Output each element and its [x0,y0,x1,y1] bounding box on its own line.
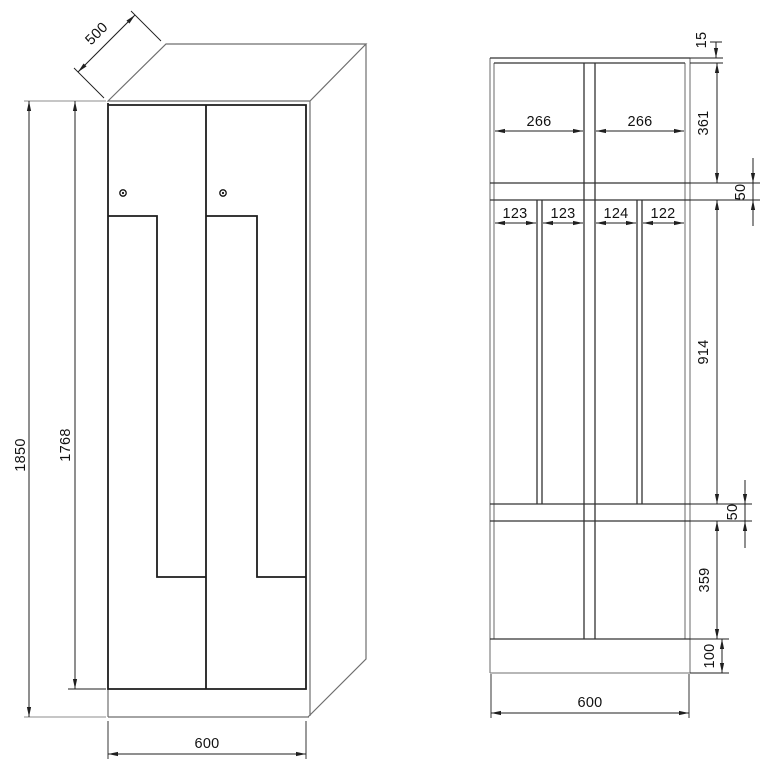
dim-top-compartment-left: 266 [495,114,583,131]
dim-depth-label: 500 [82,19,111,48]
dim-column-3: 124 [596,206,636,223]
dim-column-1-label: 123 [502,206,527,222]
lock-left-pin [122,192,124,194]
dim-shelf-gap-bottom-label: 50 [725,504,741,521]
dim-top-compartment-right-label: 266 [627,114,652,130]
dim-door-height: 1768 [58,101,106,689]
dim-width-front-label: 600 [194,736,219,752]
dim-shelf-gap-bottom: 50 [725,480,745,548]
cabinet-body-outline [108,44,366,717]
dim-column-2: 123 [543,206,583,223]
technical-drawing: 500 1850 1768 600 26 [0,0,768,768]
dim-middle-height: 914 [696,200,717,504]
lock-right-pin [222,192,224,194]
section-extension-lines [491,58,760,718]
dim-depth-line [78,15,135,72]
dim-upper-height-label: 361 [696,110,712,135]
section-walls [490,58,690,673]
drawing-canvas: 500 1850 1768 600 26 [0,0,768,768]
lock-left [120,190,126,196]
dim-top-panel: 15 [694,32,722,58]
dim-width-section: 600 [491,695,689,713]
lock-right [220,190,226,196]
section-view: 266 266 123 123 124 122 15 [490,32,760,718]
z-doors-outline [108,103,306,689]
dim-depth-extension-lines [74,11,161,98]
dim-bottom-height: 359 [697,521,717,639]
dim-column-4: 122 [643,206,684,223]
dim-depth: 500 [74,11,161,98]
dim-total-height-label: 1850 [13,438,29,471]
dim-door-height-label: 1768 [58,428,74,461]
section-shelves-and-dividers [490,58,690,639]
dim-middle-height-label: 914 [696,339,712,364]
dim-column-1: 123 [495,206,536,223]
dim-width-front: 600 [108,721,306,759]
front-view: 500 1850 1768 600 [13,11,366,759]
dim-plinth-height: 100 [702,639,722,673]
dim-bottom-height-label: 359 [697,567,713,592]
dim-top-compartment-right: 266 [596,114,684,131]
dim-shelf-gap-top: 50 [733,158,753,226]
dim-top-panel-label: 15 [694,32,710,49]
dim-shelf-gap-top-label: 50 [733,184,749,201]
dim-column-3-label: 124 [603,206,628,222]
dim-total-height-extension-lines [24,101,106,717]
dim-top-compartment-left-label: 266 [526,114,551,130]
dim-column-4-label: 122 [650,206,675,222]
dim-total-height: 1850 [13,101,106,717]
dim-width-section-label: 600 [577,695,602,711]
dim-column-2-label: 123 [550,206,575,222]
dim-upper-height: 361 [696,63,717,183]
dim-plinth-height-label: 100 [702,643,718,668]
